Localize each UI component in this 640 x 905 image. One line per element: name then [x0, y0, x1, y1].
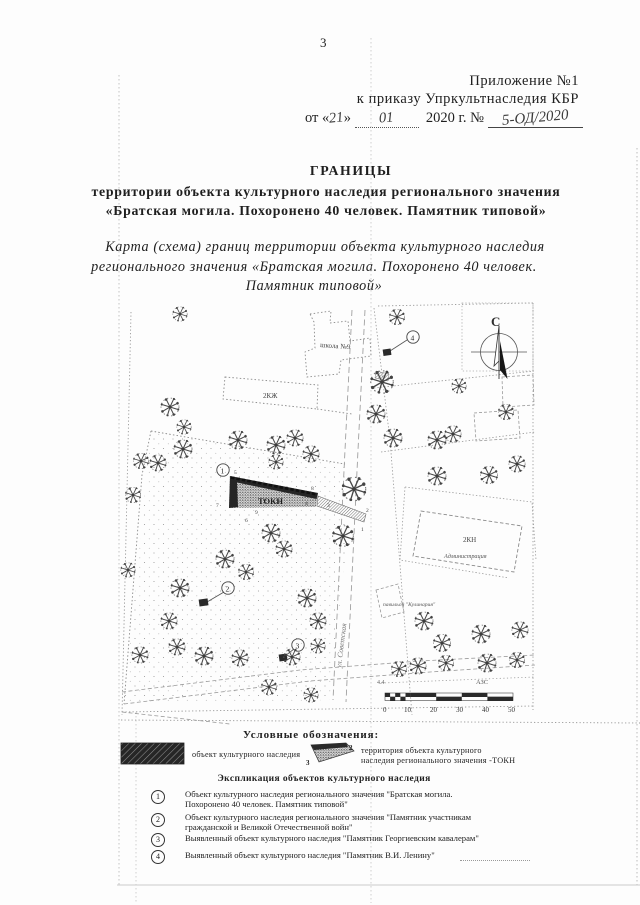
svg-text:наследия регионального значени: наследия регионального значения -ТОКН: [361, 756, 515, 765]
svg-text:4: 4: [305, 501, 308, 507]
svg-text:павильон "Кулинария": павильон "Кулинария": [383, 602, 436, 608]
svg-text:2: 2: [366, 508, 369, 514]
svg-text:40: 40: [482, 706, 490, 714]
svg-text:7: 7: [216, 503, 219, 509]
svg-text:2: 2: [349, 744, 353, 752]
svg-text:8: 8: [311, 486, 314, 492]
svg-text:объект культурного наследия: объект культурного наследия: [192, 750, 300, 759]
svg-text:территория объекта культурного: территория объекта культурного: [361, 746, 482, 755]
svg-text:Администрация: Администрация: [443, 553, 487, 560]
svg-text:5: 5: [234, 470, 237, 476]
svg-text:1: 1: [221, 467, 225, 476]
svg-text:4.4: 4.4: [377, 680, 385, 686]
svg-text:2: 2: [226, 585, 230, 594]
svg-text:1: 1: [361, 527, 364, 533]
svg-text:ТОКН: ТОКН: [258, 496, 283, 506]
svg-text:Условные обозначения:: Условные обозначения:: [243, 729, 379, 741]
svg-text:2КЖ: 2КЖ: [263, 392, 278, 400]
svg-text:9: 9: [255, 510, 258, 516]
svg-text:10: 10: [404, 706, 412, 714]
svg-text:АЗС: АЗС: [476, 679, 488, 686]
svg-text:3: 3: [327, 503, 330, 509]
svg-text:20: 20: [430, 706, 438, 714]
svg-text:0: 0: [383, 706, 387, 714]
svg-text:3: 3: [306, 759, 310, 767]
svg-text:50: 50: [508, 706, 516, 714]
svg-text:30: 30: [456, 706, 464, 714]
svg-text:2КН: 2КН: [463, 536, 476, 544]
svg-text:школа №9: школа №9: [320, 341, 351, 351]
svg-text:6: 6: [245, 518, 248, 524]
svg-text:4: 4: [411, 334, 415, 343]
